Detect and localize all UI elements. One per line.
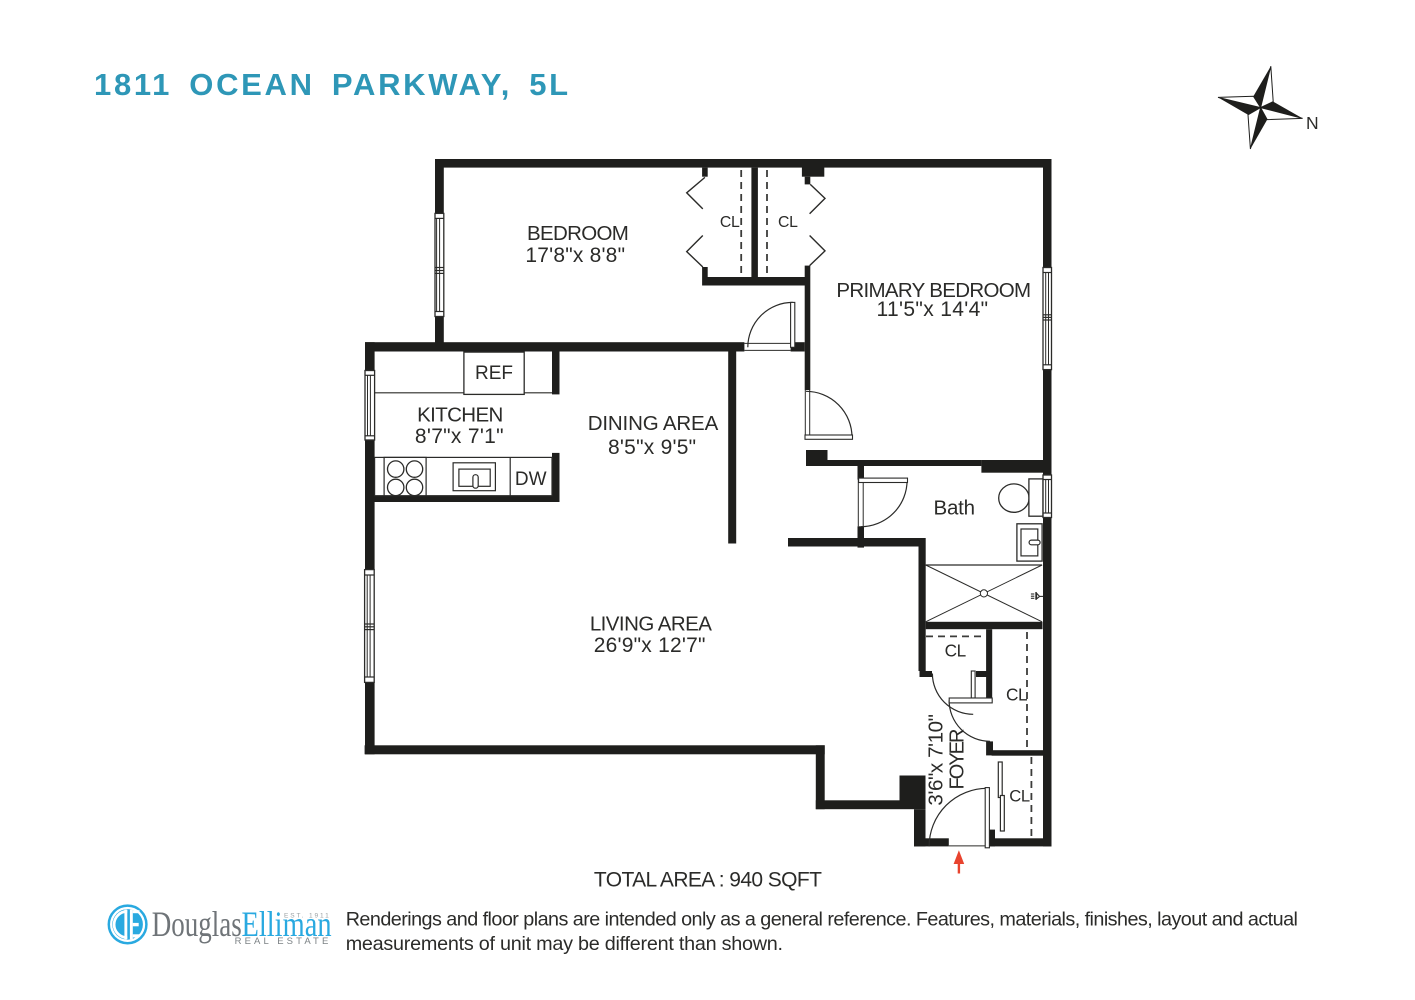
svg-text:8'7"x 7'1": 8'7"x 7'1" bbox=[415, 425, 504, 448]
svg-text:KITCHEN: KITCHEN bbox=[417, 403, 503, 426]
svg-text:11'5"x 14'4": 11'5"x 14'4" bbox=[877, 298, 989, 321]
svg-text:CL: CL bbox=[778, 214, 798, 231]
svg-text:Renderings and floor plans are: Renderings and floor plans are intended … bbox=[346, 909, 1298, 931]
svg-text:TOTAL AREA : 940 SQFT: TOTAL AREA : 940 SQFT bbox=[594, 868, 822, 891]
svg-text:CL: CL bbox=[1006, 685, 1027, 705]
svg-text:BEDROOM: BEDROOM bbox=[527, 222, 628, 245]
svg-text:EST. 1911: EST. 1911 bbox=[284, 913, 331, 920]
svg-text:1811 OCEAN PARKWAY, 5L: 1811 OCEAN PARKWAY, 5L bbox=[94, 67, 571, 102]
svg-text:Douglas: Douglas bbox=[152, 904, 242, 944]
svg-text:3'6"x 7'10": 3'6"x 7'10" bbox=[925, 714, 948, 805]
svg-text:CL: CL bbox=[945, 641, 966, 661]
svg-text:26'9"x 12'7": 26'9"x 12'7" bbox=[594, 634, 706, 657]
svg-text:CL: CL bbox=[720, 214, 740, 231]
svg-text:17'8"x 8'8": 17'8"x 8'8" bbox=[525, 244, 625, 267]
svg-text:measurements of unit may be di: measurements of unit may be different th… bbox=[346, 933, 783, 955]
svg-text:8'5"x 9'5": 8'5"x 9'5" bbox=[608, 436, 696, 459]
svg-text:LIVING AREA: LIVING AREA bbox=[590, 613, 712, 636]
svg-text:DW: DW bbox=[515, 469, 547, 490]
svg-text:REF: REF bbox=[475, 363, 513, 384]
svg-text:CL: CL bbox=[1009, 787, 1030, 806]
svg-text:DINING AREA: DINING AREA bbox=[588, 412, 719, 435]
svg-text:Bath: Bath bbox=[934, 497, 975, 520]
svg-text:N: N bbox=[1306, 113, 1319, 133]
svg-text:FOYER: FOYER bbox=[947, 729, 969, 789]
svg-text:REAL ESTATE: REAL ESTATE bbox=[235, 936, 332, 947]
